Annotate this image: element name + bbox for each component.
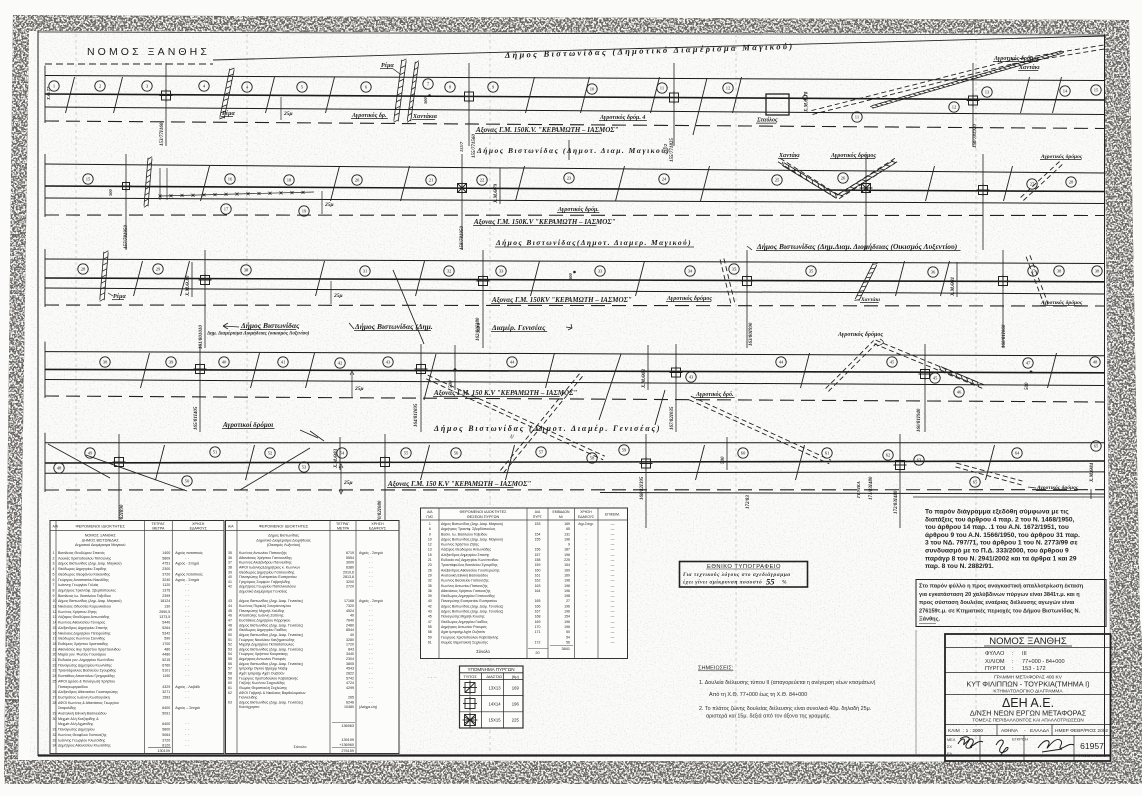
svg-text:2. Το πλάτος ζώνης δουλείας δ: 2. Το πλάτος ζώνης δουλείας διέλευσης εί…	[699, 705, 871, 712]
svg-text:· ·: · ·	[369, 566, 373, 570]
svg-text:Α/Α: Α/Α	[228, 525, 234, 529]
svg-text:· ·: · ·	[369, 672, 373, 676]
svg-text:—: —	[611, 527, 615, 531]
svg-text:Χαντάκι: Χαντάκι	[1018, 64, 1040, 71]
svg-text:Ιωάννης Γεωργίου Κλωτσίδης: Ιωάννης Γεωργίου Κλωτσίδης	[58, 738, 105, 742]
svg-text:25μ: 25μ	[333, 293, 343, 299]
svg-text:·: ·	[585, 579, 586, 583]
svg-text:1190: 1190	[163, 674, 171, 678]
svg-text:·: ·	[585, 563, 586, 567]
svg-text:(Διάχρι-ιλη): (Διάχρι-ιλη)	[359, 705, 377, 709]
svg-text:Αγροτικός δρόμος: Αγροτικός δρόμος	[837, 331, 883, 338]
svg-text:56: 56	[228, 662, 232, 666]
svg-text:50: 50	[228, 633, 232, 637]
svg-text:11: 11	[855, 115, 860, 120]
svg-text:130: 130	[164, 605, 170, 609]
svg-text:ΕΜΒΑΔΟΝ: ΕΜΒΑΔΟΝ	[553, 510, 570, 514]
svg-text:28: 28	[81, 267, 86, 272]
svg-text:Δημήτριος Αντωνίου Ραουρές: Δημήτριος Αντωνίου Ραουρές	[441, 625, 487, 629]
svg-text:ΜΕΤΡΑ: ΜΕΤΡΑ	[337, 526, 350, 530]
svg-text:ΔΗΜΟΣ ΒΙΣΤΩΝΙΔΑΣ: ΔΗΜΟΣ ΒΙΣΤΩΝΙΔΑΣ	[82, 538, 120, 542]
svg-text:4480: 4480	[162, 653, 170, 657]
svg-text:· ·: · ·	[185, 738, 189, 742]
svg-text:Ιωάννης Γεωργίου Γκλιάς: Ιωάννης Γεωργίου Γκλιάς	[58, 583, 99, 587]
svg-text:Αχάτ Ιμπραήμ Αχάτ Ουζτσάν: Αχάτ Ιμπραήμ Αχάτ Ουζτσάν	[441, 630, 485, 634]
svg-text:2304: 2304	[346, 657, 354, 661]
svg-text:29: 29	[428, 574, 432, 578]
svg-text:· ·: · ·	[369, 623, 373, 627]
svg-text:παρ. 8 του Ν. 2882/91.: παρ. 8 του Ν. 2882/91.	[925, 563, 994, 570]
svg-text:2: 2	[53, 556, 55, 560]
svg-text:ΕΛΛΑΔΑ: ΕΛΛΑΔΑ	[1030, 728, 1050, 734]
svg-text:6246: 6246	[346, 700, 354, 704]
svg-text:ΣΗΜΕΙΩΣΕΙΣ:: ΣΗΜΕΙΩΣΕΙΣ:	[698, 666, 734, 672]
svg-text:· ·: · ·	[185, 599, 189, 603]
svg-text:7640: 7640	[346, 619, 354, 623]
svg-text:20: 20	[535, 651, 539, 655]
svg-text:Λουκάς Χριστοδούλου Τσιτσώνης: Λουκάς Χριστοδούλου Τσιτσώνης	[58, 556, 111, 560]
svg-text:·: ·	[585, 635, 586, 639]
svg-text:Κων/νος Θεοφίλου Γιαπουτζής: Κων/νος Θεοφίλου Γιαπουτζής	[58, 733, 107, 737]
svg-text:Θεόδωρος Κων/νου Σαννίδης: Θεόδωρος Κων/νου Σαννίδης	[58, 637, 105, 641]
svg-text:ΕΛ: ΕΛ	[947, 752, 953, 756]
svg-text:12: 12	[428, 543, 432, 547]
svg-text:Αγροτικός δρόμος: Αγροτικός δρόμος	[1040, 153, 1083, 160]
svg-text:18: 18	[287, 178, 292, 183]
svg-text:164: 164	[535, 589, 541, 593]
svg-text:· ·: · ·	[185, 674, 189, 678]
svg-text:25: 25	[775, 178, 780, 183]
svg-text:· ·: · ·	[185, 669, 189, 673]
svg-text:—: —	[611, 630, 615, 634]
svg-text:17168: 17168	[344, 599, 354, 603]
svg-text:ΦΥΛΛΟ: ΦΥΛΛΟ	[985, 651, 1005, 657]
svg-text:39: 39	[428, 594, 432, 598]
svg-text:· ·: · ·	[185, 663, 189, 667]
svg-text:Νικόλαος Οδυσσέα Κορωνικάλου: Νικόλαος Οδυσσέα Κορωνικάλου	[58, 605, 111, 609]
svg-text:54: 54	[566, 635, 570, 639]
svg-text:9: 9	[53, 594, 55, 598]
svg-text:196: 196	[564, 553, 570, 557]
svg-text:4329: 4329	[162, 685, 170, 689]
svg-text:58: 58	[228, 672, 232, 676]
svg-text:154: 154	[564, 615, 570, 619]
svg-text:3805: 3805	[346, 662, 354, 666]
svg-text:21: 21	[429, 178, 434, 183]
svg-text:Ρέμα: Ρέμα	[222, 110, 235, 117]
svg-text:35: 35	[428, 584, 432, 588]
svg-text:6400: 6400	[162, 722, 170, 726]
svg-text:3: 3	[53, 562, 55, 566]
svg-text:40: 40	[428, 599, 432, 603]
svg-text:2720: 2720	[346, 585, 354, 589]
svg-text:·: ·	[585, 620, 586, 624]
svg-text:Χ.Μ.Θ84: Χ.Μ.Θ84	[1090, 462, 1095, 483]
svg-text:61: 61	[428, 640, 432, 644]
svg-text:60: 60	[741, 451, 746, 456]
svg-text:: 1 : 2000: : 1 : 2000	[963, 728, 983, 734]
svg-text:50: 50	[185, 479, 190, 484]
svg-text:ΝΟΜΟΣ ΞΑΝΘΗΣ: ΝΟΜΟΣ ΞΑΝΘΗΣ	[87, 46, 210, 58]
svg-text:Χαντάκι: Χαντάκι	[860, 296, 880, 303]
svg-text:· ·: · ·	[185, 658, 189, 662]
svg-text:500: 500	[1025, 382, 1030, 390]
svg-text:11: 11	[53, 605, 57, 609]
svg-text:· ·: · ·	[185, 615, 189, 619]
svg-text:43: 43	[228, 599, 232, 603]
svg-text:2590,5: 2590,5	[159, 610, 170, 614]
svg-text:43: 43	[386, 360, 391, 365]
svg-text:8544: 8544	[346, 628, 354, 632]
svg-text:1. Δουλεία διέλευσης τύπου Ι: 1. Δουλεία διέλευσης τύπου ΙΙ (απαγορεύε…	[699, 679, 876, 686]
svg-text:Ευδοκία γυν. Δημητρίου Κων/νίδ: Ευδοκία γυν. Δημητρίου Κων/νίδου	[58, 658, 114, 662]
svg-text:Σταύλος: Σταύλος	[756, 117, 778, 124]
svg-text:167/82Ι035: 167/82Ι035	[670, 406, 675, 430]
svg-text:Αγροτικός δρόμος: Αγροτικός δρόμος	[1036, 484, 1079, 491]
svg-text:Χ.Μ.Θ.78: Χ.Μ.Θ.78	[805, 91, 810, 113]
svg-text:225: 225	[512, 718, 520, 723]
svg-text:Από τη Χ.Θ. 77+000 έως τη Χ.Θ.: Από τη Χ.Θ. 77+000 έως τη Χ.Θ. 84+000	[709, 691, 807, 698]
svg-text:3200: 3200	[346, 580, 354, 584]
svg-text:Χ.Μ.Θ81: Χ.Μ.Θ81	[951, 277, 956, 297]
svg-text:36: 36	[228, 556, 232, 560]
svg-text:·: ·	[585, 584, 586, 588]
svg-text:30: 30	[53, 717, 57, 721]
svg-text:153: 153	[535, 522, 541, 526]
svg-text:·: ·	[585, 640, 586, 644]
svg-text:47: 47	[228, 619, 232, 623]
svg-text:26: 26	[428, 568, 432, 572]
svg-text:ΘΕΣΕΩΝ ΠΥΡΓΩΝ: ΘΕΣΕΩΝ ΠΥΡΓΩΝ	[467, 515, 500, 519]
svg-text:130109: 130109	[157, 749, 170, 753]
svg-text:169: 169	[535, 620, 541, 624]
svg-text:Δήμος Βιστωνίδας(Δημοτ. Διαμερ: Δήμος Βιστωνίδας(Δημοτ. Διαμερ. Μαγικού)	[495, 238, 692, 247]
svg-text:· ·: · ·	[185, 589, 189, 593]
svg-text:12: 12	[952, 105, 957, 110]
svg-text:Το παρόν διάγραμμα εξεδόθη σύμ: Το παρόν διάγραμμα εξεδόθη σύμφωνα με τι…	[925, 509, 1069, 516]
svg-text:843: 843	[348, 647, 354, 651]
svg-text:187: 187	[564, 548, 570, 552]
svg-text:·: ·	[585, 527, 586, 531]
svg-text:· ·: · ·	[185, 647, 189, 651]
svg-text:1400: 1400	[162, 551, 170, 555]
svg-text:53: 53	[228, 647, 232, 651]
svg-text:15: 15	[428, 553, 432, 557]
svg-text:Ανατολική Εθνική Βασιλειάδου: Ανατολική Εθνική Βασιλειάδου	[441, 574, 488, 578]
svg-text:· ·: · ·	[369, 585, 373, 589]
svg-text:Δήμος Βιστωνίδας (Δημ. Διαμ. Μ: Δήμος Βιστωνίδας (Δημ. Διαμ. Μαγικού)	[58, 562, 122, 566]
svg-text:39: 39	[169, 360, 174, 365]
svg-text:4524: 4524	[346, 609, 354, 613]
svg-text:1: 1	[53, 551, 55, 555]
svg-text:154: 154	[535, 532, 541, 536]
svg-text:225: 225	[564, 558, 570, 562]
svg-text:Αγροτικός δρόμ. 4: Αγροτικός δρόμ. 4	[599, 114, 645, 121]
svg-text:4724: 4724	[346, 681, 354, 685]
svg-text:Γεώργιος Χρήστου Κουρσάκης: Γεώργιος Χρήστου Κουρσάκης	[239, 652, 288, 656]
svg-text:· ·: · ·	[185, 626, 189, 630]
svg-text:7320: 7320	[346, 604, 354, 608]
svg-text:4: 4	[53, 567, 55, 571]
svg-text:57: 57	[228, 667, 232, 671]
svg-text:· ·: · ·	[185, 690, 189, 694]
svg-text:60: 60	[228, 681, 232, 685]
svg-text:19: 19	[53, 647, 57, 651]
svg-text:Γιαννελίδης: Γιαννελίδης	[239, 696, 257, 700]
svg-text:Αγρός ποτιστικός: Αγρός ποτιστικός	[175, 572, 203, 576]
svg-text:·: ·	[585, 532, 586, 536]
svg-text:Αλέξανδρος Δημητρίου Σπανής: Αλέξανδρος Δημητρίου Σπανής	[58, 626, 108, 630]
svg-text:ΜΕΛ: ΜΕΛ	[947, 738, 956, 742]
svg-text:ΜΕΤΡΑ: ΜΕΤΡΑ	[152, 526, 165, 530]
svg-text:36: 36	[931, 270, 936, 275]
svg-text:Γεώργιος Χριστοδούλου Καβατζικ: Γεώργιος Χριστοδούλου Καβατζικλής	[441, 635, 499, 639]
svg-text:· ·: · ·	[369, 657, 373, 661]
svg-text:Αλέξανδρος Αθανασίου Γουστεριώ: Αλέξανδρος Αθανασίου Γουστεριώτης	[441, 568, 500, 572]
svg-text:23: 23	[53, 669, 57, 673]
svg-text:Κων/νος Αντωνίου Παπουτζής: Κων/νος Αντωνίου Παπουτζής	[239, 551, 287, 555]
svg-text:Αγρός - Σιτηρά: Αγρός - Σιτηρά	[359, 599, 383, 603]
svg-text:Ιμπραήμ Ογλού Ιβραχίμ Ναζίφ: Ιμπραήμ Ογλού Ιβραχίμ Ναζίφ	[239, 667, 288, 671]
svg-text:38: 38	[103, 360, 108, 365]
svg-text:—: —	[611, 599, 615, 603]
svg-text:13: 13	[985, 90, 990, 95]
svg-text:Κων/νος Αντωνίου Παπουτζής: Κων/νος Αντωνίου Παπουτζής	[441, 584, 488, 588]
svg-text:Αθανάσιος θυγ Χρήστου Χρησταυλ: Αθανάσιος θυγ Χρήστου Χρησταυλίδου	[58, 647, 121, 651]
svg-text:·: ·	[585, 615, 586, 619]
svg-text:196: 196	[564, 589, 570, 593]
svg-text:62: 62	[886, 453, 891, 458]
svg-text:+136960: +136960	[339, 743, 354, 747]
svg-text:20: 20	[355, 178, 360, 183]
svg-text:14: 14	[53, 621, 57, 625]
svg-text:· ·: · ·	[369, 633, 373, 637]
svg-text:154: 154	[564, 563, 570, 567]
svg-text:3440: 3440	[346, 652, 354, 656]
svg-text:3720: 3720	[162, 572, 170, 576]
svg-text:Θωμάς Θεμιστοκλή Σεχλιώτης: Θωμάς Θεμιστοκλή Σεχλιώτης	[441, 640, 488, 644]
svg-text:συνδυασμό με το Π.Δ. 333/2000,: συνδυασμό με το Π.Δ. 333/2000, του άρθρο…	[925, 548, 1069, 555]
svg-text:49: 49	[88, 451, 93, 456]
svg-text:3271: 3271	[162, 690, 170, 694]
svg-text:· ·: · ·	[185, 733, 189, 737]
svg-text:ΦΕΡΟΜΕΝΟΙ ΙΔΙΟΚΤΗΤΕΣ: ΦΕΡΟΜΕΝΟΙ ΙΔΙΟΚΤΗΤΕΣ	[75, 524, 125, 529]
svg-text:—: —	[611, 568, 615, 572]
svg-text:Μεχμέτ Αλή Αχμετίδης: Μεχμέτ Αλή Αχμετίδης	[58, 722, 93, 726]
svg-text:162/8: 162/8	[476, 322, 481, 333]
svg-text:%: %	[782, 580, 787, 586]
svg-text:590: 590	[164, 637, 170, 641]
svg-text:24: 24	[662, 177, 667, 182]
svg-text:25: 25	[53, 679, 57, 683]
svg-text:·: ·	[585, 568, 586, 572]
svg-text:171: 171	[535, 630, 541, 634]
svg-text:Αγρός - Σιτηρά: Αγρός - Σιτηρά	[175, 562, 199, 566]
svg-text:47: 47	[428, 620, 432, 624]
svg-text:35: 35	[809, 269, 814, 274]
svg-text:172/83Ι480: 172/83Ι480	[894, 490, 899, 514]
svg-text:Κων/νος Αθανασίου Γέννερας: Κων/νος Αθανασίου Γέννερας	[58, 621, 106, 625]
svg-text:5091: 5091	[162, 712, 170, 716]
svg-text:Δημήτριος Τριαντφ. Σβερδόπουλο: Δημήτριος Τριαντφ. Σβερδόπουλος	[441, 527, 496, 531]
svg-text:196: 196	[512, 702, 520, 707]
svg-text:Κων/νος Χρήστου Ζήτης: Κων/νος Χρήστου Ζήτης	[441, 543, 479, 547]
svg-text:—: —	[611, 558, 615, 562]
svg-text:40: 40	[228, 575, 232, 579]
svg-text:22: 22	[480, 178, 485, 183]
svg-text:6380: 6380	[346, 566, 354, 570]
svg-text:6: 6	[429, 527, 431, 531]
svg-text:προς σύσταση δουλείας εναέρ: προς σύσταση δουλείας εναέριας διέλευσης…	[919, 600, 1075, 606]
svg-text:34: 34	[53, 744, 57, 748]
svg-text:ΤΟΜΕΑΣ ΠΕΡΙΒΑΛΛΟΝΤΟΣ ΚΑΙ ΑΠΑΛΛ: ΤΟΜΕΑΣ ΠΕΡΙΒΑΛΛΟΝΤΟΣ ΚΑΙ ΑΠΑΛΛΟΤΡΙΩΣΕΩΝ	[972, 718, 1083, 723]
svg-text:3000: 3000	[346, 561, 354, 565]
svg-text:ΥΠΟΜΝΗΜΑ ΠΥΡΓΩΝ: ΥΠΟΜΝΗΜΑ ΠΥΡΓΩΝ	[467, 667, 514, 672]
svg-text:1583: 1583	[162, 696, 170, 700]
svg-text:500: 500	[423, 97, 428, 105]
svg-text:34: 34	[688, 269, 693, 274]
svg-text:Αγρός - Σιτηρά: Αγρός - Σιτηρά	[359, 551, 383, 555]
svg-text:Ξάνθης.: Ξάνθης.	[919, 617, 940, 623]
svg-text:ΤΥΠΟΣ: ΤΥΠΟΣ	[463, 674, 477, 679]
svg-text:12: 12	[53, 610, 57, 614]
svg-text:Νικόλαος Δημητρίου Πεταρούδης: Νικόλαος Δημητρίου Πεταρούδης	[58, 631, 111, 635]
svg-text:43: 43	[689, 375, 694, 380]
svg-text:65: 65	[1094, 444, 1099, 449]
svg-text:—: —	[611, 625, 615, 629]
svg-text:35: 35	[732, 267, 737, 272]
svg-text:· ·: · ·	[369, 686, 373, 690]
svg-text:5342: 5342	[162, 631, 170, 635]
svg-text:45: 45	[933, 376, 938, 381]
svg-text:· ·: · ·	[369, 643, 373, 647]
svg-text:ΦΕΡΟΜΕΝΟΙ ΙΔΙΟΚΤΗΤΕΣ: ΦΕΡΟΜΕΝΟΙ ΙΔΙΟΚΤΗΤΕΣ	[259, 524, 309, 529]
svg-text:Δήμος Βιστωνίδας (Δημ. Διαμ. Μ: Δήμος Βιστωνίδας (Δημ. Διαμ. Μαγικού)	[441, 522, 503, 526]
svg-text:Δημοτικό Διαμέρισμα Μαγικού: Δημοτικό Διαμέρισμα Μαγικού	[75, 543, 125, 547]
svg-text:ΧΡΗΣΗ: ΧΡΗΣΗ	[580, 510, 592, 514]
svg-text:480: 480	[164, 647, 170, 651]
svg-text:ΕΔΑΦΟΥΣ: ΕΔΑΦΟΥΣ	[369, 526, 387, 530]
svg-text:Γεώργιος Αναστασίου Νικολίδης: Γεώργιος Αναστασίου Νικολίδης	[58, 578, 109, 582]
svg-text:25μ: 25μ	[354, 386, 364, 392]
svg-text:15: 15	[53, 626, 57, 630]
svg-text:171/83Ι480: 171/83Ι480	[869, 476, 874, 500]
svg-text:—: —	[611, 640, 615, 644]
svg-text:33: 33	[598, 269, 603, 274]
svg-text:6: 6	[53, 578, 55, 582]
svg-text:—: —	[611, 543, 615, 547]
svg-text:162: 162	[535, 579, 541, 583]
svg-text:52: 52	[228, 643, 232, 647]
svg-text:Παναγιώτης Ευστρατίου Ευστρατί: Παναγιώτης Ευστρατίου Ευστρατίου	[441, 599, 497, 603]
svg-text:Σύνολο: Σύνολο	[294, 744, 308, 749]
svg-text:33: 33	[499, 269, 504, 274]
svg-text:166: 166	[535, 604, 541, 608]
svg-text:Χ.Μ.Θ79: Χ.Μ.Θ79	[494, 183, 499, 204]
svg-text:9: 9	[568, 543, 570, 547]
svg-text:44: 44	[228, 604, 232, 608]
svg-text:Σταφυλίδης: Σταφυλίδης	[58, 706, 76, 710]
svg-text:αριστερά και 15μ. δεξιά από το: αριστερά και 15μ. δεξιά από τον άξονα τη…	[706, 713, 831, 720]
svg-text:46: 46	[228, 614, 232, 618]
svg-text:155: 155	[535, 537, 541, 541]
svg-text:155/2: 155/2	[663, 143, 668, 154]
svg-text:/|/: /|/	[509, 435, 514, 440]
svg-text:1373,5: 1373,5	[159, 615, 170, 619]
svg-text:Αγροτικός δρό.: Αγροτικός δρό.	[695, 391, 734, 398]
svg-text:61: 61	[228, 686, 232, 690]
svg-text:Ανατολική Εθνική Βασιλειάδου: Ανατολική Εθνική Βασιλειάδου	[58, 712, 106, 716]
svg-text:· ·: · ·	[185, 610, 189, 614]
svg-text:για εγκατάσταση 20 χαλύβδινων: για εγκατάσταση 20 χαλύβδινων πύργων είν…	[919, 592, 1080, 598]
svg-text:· ·: · ·	[185, 621, 189, 625]
svg-text:65: 65	[566, 527, 570, 531]
svg-text:12: 12	[726, 86, 731, 91]
svg-text:2300: 2300	[162, 567, 170, 571]
svg-text:42: 42	[428, 604, 432, 608]
svg-text:Αλέξανδρος Αθανασίου Γουστεριώ: Αλέξανδρος Αθανασίου Γουστεριώτης	[58, 690, 118, 694]
svg-text:11: 11	[660, 86, 665, 91]
svg-text:163: 163	[535, 584, 541, 588]
svg-text:—: —	[611, 615, 615, 619]
svg-text:ΦΕΡΟΜΕΝΟΙ ΙΔΙΟΚΤΗΤΕΣ: ΦΕΡΟΜΕΝΟΙ ΙΔΙΟΚΤΗΤΕΣ	[460, 510, 508, 514]
svg-text:Αγρός – Σιτηρά: Αγρός – Σιτηρά	[175, 706, 199, 710]
svg-text:15Χ15: 15Χ15	[488, 718, 501, 723]
svg-text:51: 51	[213, 450, 218, 455]
svg-text:· ·: · ·	[369, 580, 373, 584]
svg-text:77+000 - 84+000: 77+000 - 84+000	[1022, 659, 1065, 665]
svg-text:39: 39	[228, 570, 232, 574]
svg-text:18: 18	[53, 642, 57, 646]
svg-text:10: 10	[590, 87, 595, 92]
svg-text:—: —	[611, 584, 615, 588]
svg-text:Αποστόλης Ιωάννη Ζαπίνης: Αποστόλης Ιωάννη Ζαπίνης	[239, 614, 284, 618]
svg-text:37: 37	[228, 561, 232, 565]
svg-text:40: 40	[350, 633, 354, 637]
svg-text:198: 198	[564, 594, 570, 598]
svg-text:38: 38	[228, 566, 232, 570]
svg-text:31: 31	[363, 269, 368, 274]
svg-text:Αγρός ποτιστικός: Αγρός ποτιστικός	[175, 551, 203, 555]
svg-text:61: 61	[825, 451, 830, 456]
svg-text:55: 55	[428, 625, 432, 629]
svg-text:—: —	[611, 610, 615, 614]
svg-text:40: 40	[222, 360, 227, 365]
svg-text:ΕΔΑΦΟΥΣ: ΕΔΑΦΟΥΣ	[190, 526, 208, 530]
svg-text:·: ·	[585, 599, 586, 603]
svg-text:ΠΥΡΓΟΙ: ΠΥΡΓΟΙ	[985, 666, 1006, 672]
svg-text:32: 32	[447, 269, 452, 274]
svg-text:153/77Ι160: 153/77Ι160	[160, 122, 165, 146]
svg-text:Βασίλειος Ιω. Βασιλείου Ταξείδ: Βασίλειος Ιω. Βασιλείου Ταξείδου	[58, 594, 111, 598]
svg-text:·: ·	[585, 574, 586, 578]
svg-text:· ·: · ·	[185, 594, 189, 598]
svg-text:· ·: · ·	[369, 638, 373, 642]
svg-text:Θεόδωρος Θεοφάνου Κακανίδης: Θεόδωρος Θεοφάνου Κακανίδης	[58, 572, 110, 576]
svg-text:10480: 10480	[344, 705, 354, 709]
svg-text:ΙΙΙ: ΙΙΙ	[1022, 651, 1027, 657]
svg-text:Σύνολο: Σύνολο	[476, 649, 490, 654]
svg-text:27: 27	[53, 696, 57, 700]
svg-text:196: 196	[564, 604, 570, 608]
svg-text:Δ/ΝΣΗ ΝΕΩΝ ΕΡΓΩΝ ΜΕΤΑΦΟΡΑΣ: Δ/ΝΣΗ ΝΕΩΝ ΕΡΓΩΝ ΜΕΤΑΦΟΡΑΣ	[970, 709, 1087, 718]
svg-text:παράγρ 8 του Ν. 2941/2002 και: παράγρ 8 του Ν. 2941/2002 και τα άρθρα 1…	[925, 555, 1077, 562]
svg-text:—: —	[611, 579, 615, 583]
svg-text:· ·: · ·	[369, 647, 373, 651]
svg-text:Διαμέρ. Γενισέας: Διαμέρ. Γενισέας	[491, 323, 546, 332]
svg-text:3280: 3280	[346, 638, 354, 642]
svg-text:157/781950: 157/781950	[124, 225, 129, 249]
